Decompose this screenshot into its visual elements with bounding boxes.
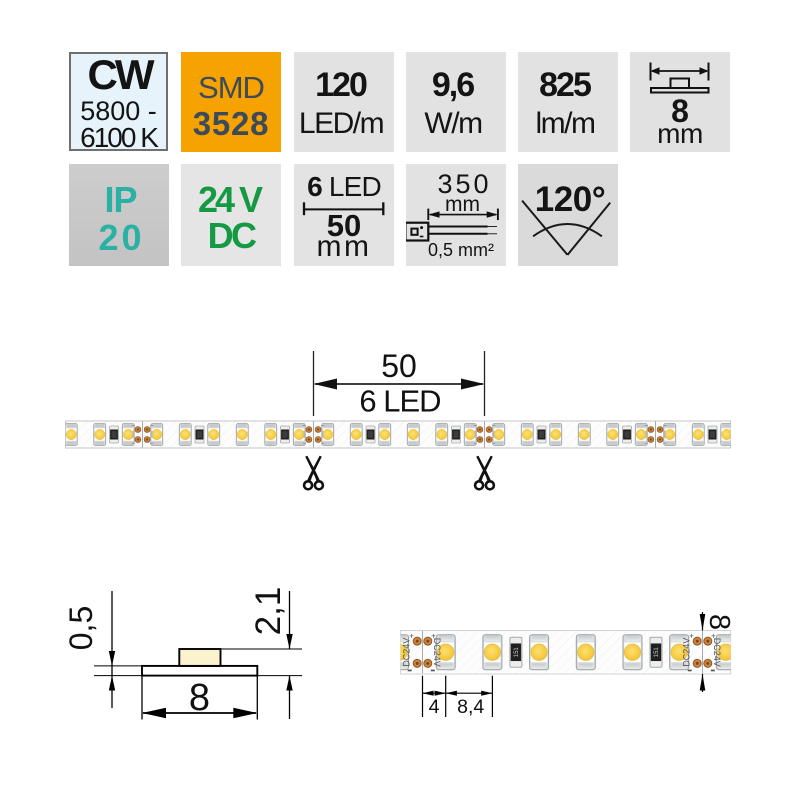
svg-text:50: 50 xyxy=(381,348,417,384)
svg-text:8: 8 xyxy=(189,677,210,719)
svg-text:8: 8 xyxy=(703,614,735,630)
svg-text:2,1: 2,1 xyxy=(249,587,288,636)
svg-text:4: 4 xyxy=(429,696,440,718)
svg-text:8,4: 8,4 xyxy=(457,696,484,718)
svg-text:DC24V: DC24V xyxy=(712,638,722,667)
svg-text:DC24V: DC24V xyxy=(432,638,442,667)
svg-text:DC24V: DC24V xyxy=(402,638,412,667)
svg-text:6 LED: 6 LED xyxy=(359,384,440,419)
svg-text:DC24V: DC24V xyxy=(682,638,692,667)
svg-text:0,5: 0,5 xyxy=(63,606,99,650)
